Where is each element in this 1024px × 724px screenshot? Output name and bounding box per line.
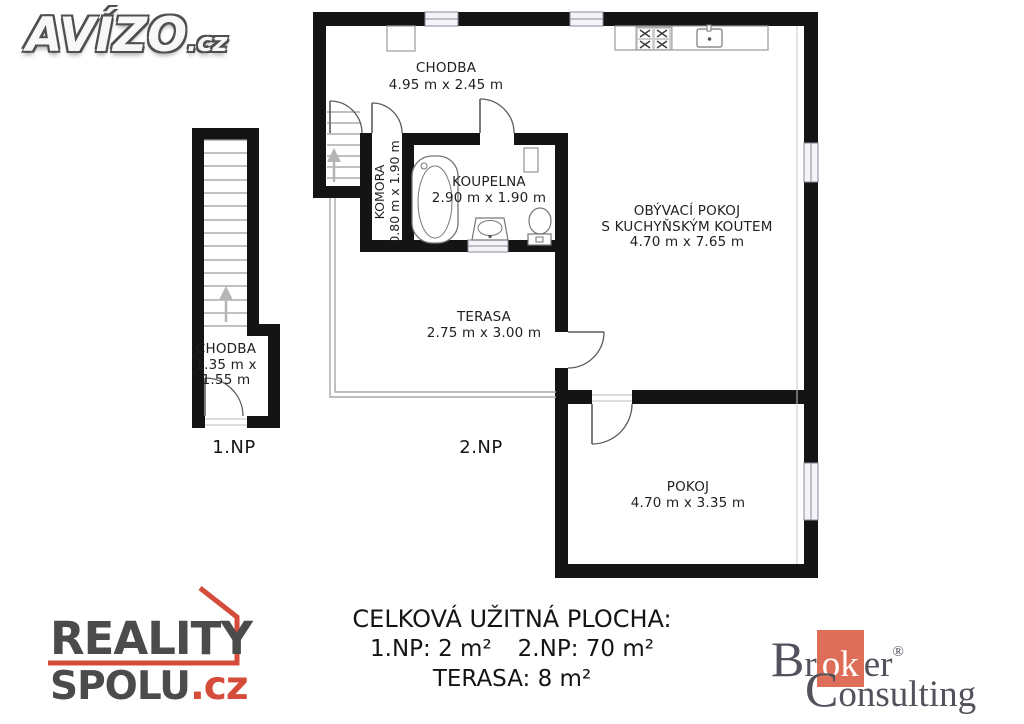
washbasin-icon xyxy=(472,218,508,240)
floor-label-1np: 1.NP xyxy=(212,437,256,458)
room-label-pokoj-dims: 4.70 m x 3.35 m xyxy=(631,495,746,511)
room-label-chodba2-name: CHODBA xyxy=(416,60,477,76)
stairs-up-arrow-icon xyxy=(219,286,233,322)
stairs-2np xyxy=(327,112,360,178)
toilet-icon xyxy=(528,208,551,245)
sink-icon xyxy=(697,25,722,47)
room-label-komora-name: KOMORA xyxy=(372,164,387,219)
walls-2np xyxy=(313,12,818,578)
room-label-chodba2-dims: 4.95 m x 2.45 m xyxy=(389,77,504,93)
door-threshold xyxy=(205,419,247,425)
reality-logo-tld: .cz xyxy=(190,664,248,709)
room-label-pokoj-name: POKOJ xyxy=(667,479,710,495)
room-label-obyvaci-dims: 4.70 m x 7.65 m xyxy=(630,234,745,250)
reality-logo-line1: REALITY xyxy=(50,612,252,665)
stairs-up-arrow-icon xyxy=(327,148,341,182)
summary-1np: 1.NP: 2 m² xyxy=(370,636,492,662)
room-label-chodba1-dims1: 1.35 m x xyxy=(195,357,256,373)
room-label-chodba1-dims2: 1.55 m xyxy=(202,372,251,388)
reality-logo-line2: SPOLU xyxy=(50,664,190,709)
room-label-komora-dims: 0.80 m x 1.90 m xyxy=(387,140,402,243)
broker-text-line2: Consulting xyxy=(805,660,976,718)
room-label-terasa-name: TERASA xyxy=(456,309,512,325)
wardrobe-icon xyxy=(387,26,415,51)
room-label-obyvaci-name2: S KUCHYŇSKÝM KOUTEM xyxy=(601,218,772,235)
shelf-icon xyxy=(524,148,538,172)
room-label-chodba1-name: CHODBA xyxy=(196,341,257,357)
room-label-terasa-dims: 2.75 m x 3.00 m xyxy=(427,325,542,341)
floor-label-2np: 2.NP xyxy=(459,437,503,458)
floor-plan-canvas: CHODBA 4.95 m x 2.45 m KOMORA 0.80 m x 1… xyxy=(0,0,1024,594)
room-label-koupelna-name: KOUPELNA xyxy=(452,174,526,190)
summary-2np: 2.NP: 70 m² xyxy=(518,636,654,662)
broker-consulting-logo: Broker® Consulting xyxy=(765,620,1015,720)
registered-mark: ® xyxy=(892,644,903,660)
door-threshold xyxy=(592,395,632,401)
room-label-obyvaci-name: OBÝVACÍ POKOJ xyxy=(634,202,741,219)
reality-spolu-logo: REALITY SPOLU.cz xyxy=(46,584,316,714)
stove-icon xyxy=(636,27,672,50)
room-label-koupelna-dims: 2.90 m x 1.90 m xyxy=(432,190,547,206)
